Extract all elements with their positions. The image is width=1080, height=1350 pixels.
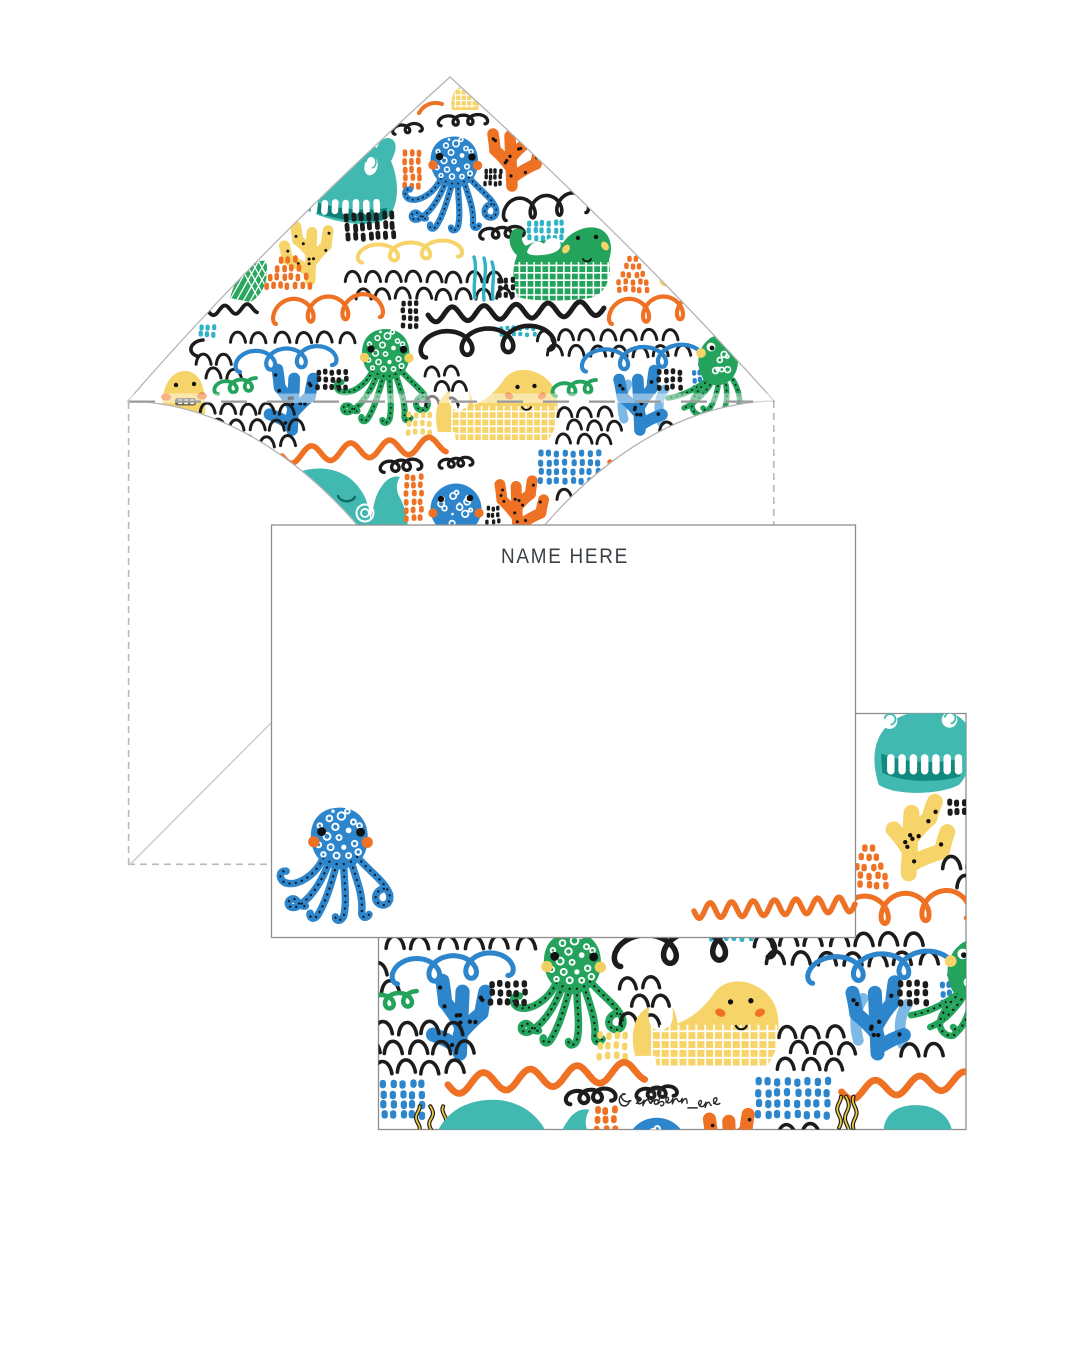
svg-text:NAME HERE: NAME HERE	[501, 544, 629, 568]
